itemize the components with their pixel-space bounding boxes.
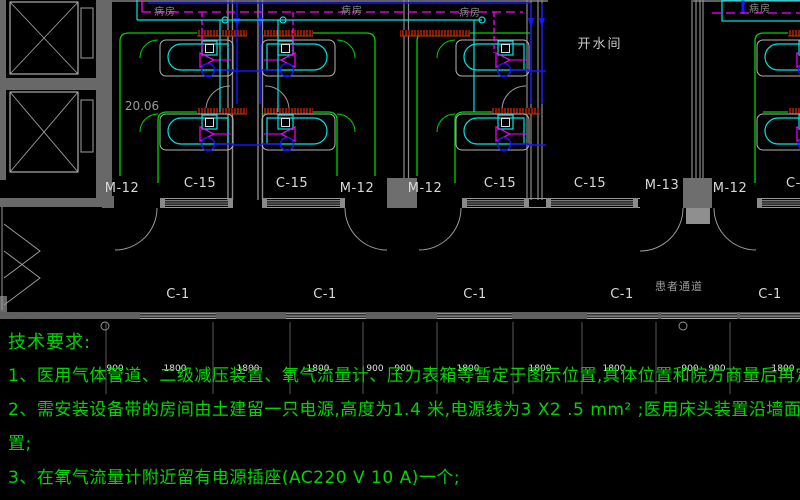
notes-line-2-cont: 置; [8,436,32,453]
window-label: C-15 [184,177,216,190]
room-label-ward: 病房 [459,9,481,19]
oxygen-pipe-blue [148,0,743,145]
level-mark: 20.06 [125,100,159,112]
door-label: M-13 [645,179,679,192]
window-label: C-1 [463,288,487,301]
window-label: C-1 [313,288,337,301]
floor-plan-drawing [0,0,800,500]
window-label: C-1 [610,288,634,301]
door-label: M-12 [340,182,374,195]
window-label: C-1 [166,288,190,301]
window-label: C-15 [574,177,606,190]
elevator-shaft-icon [10,92,93,172]
door-label: M-12 [105,182,139,195]
room-label-patient-corridor: 患者通道 [655,281,703,292]
room-label-hot-water: 开水间 [577,38,622,51]
notes-line-2: 2、需安装设备带的房间由土建留一只电源,高度为1.4 米,电源线为3 X2 .5… [8,402,800,419]
window-label: C-15 [276,177,308,190]
notes-line-1: 1、医用气体管道、二级减压装置、氧气流量计、压力表箱等暂定于图示位置,具体位置和… [8,368,800,385]
elevator-shaft-icon [10,2,93,74]
corridor-end-door [2,207,40,310]
window-label: C-15 [484,177,516,190]
bathroom-units [160,40,800,151]
notes-line-3: 3、在氧气流量计附近留有电源插座(AC220 V 10 A)一个; [8,470,460,487]
corridor-wall-windows [0,312,800,319]
door-label: M-12 [713,182,747,195]
cad-drawing-viewport: 病房 病房 病房 病房 开水间 患者通道 20.06 M-12 M-12 M-1… [0,0,800,500]
door-label: M-12 [408,182,442,195]
notes-title: 技术要求: [8,334,91,352]
window-label: C-1 [758,288,782,301]
window-label: C-15 [786,177,800,190]
room-label-ward: 病房 [749,5,771,15]
room-label-ward: 病房 [341,7,363,17]
room-label-ward: 病房 [154,8,176,18]
